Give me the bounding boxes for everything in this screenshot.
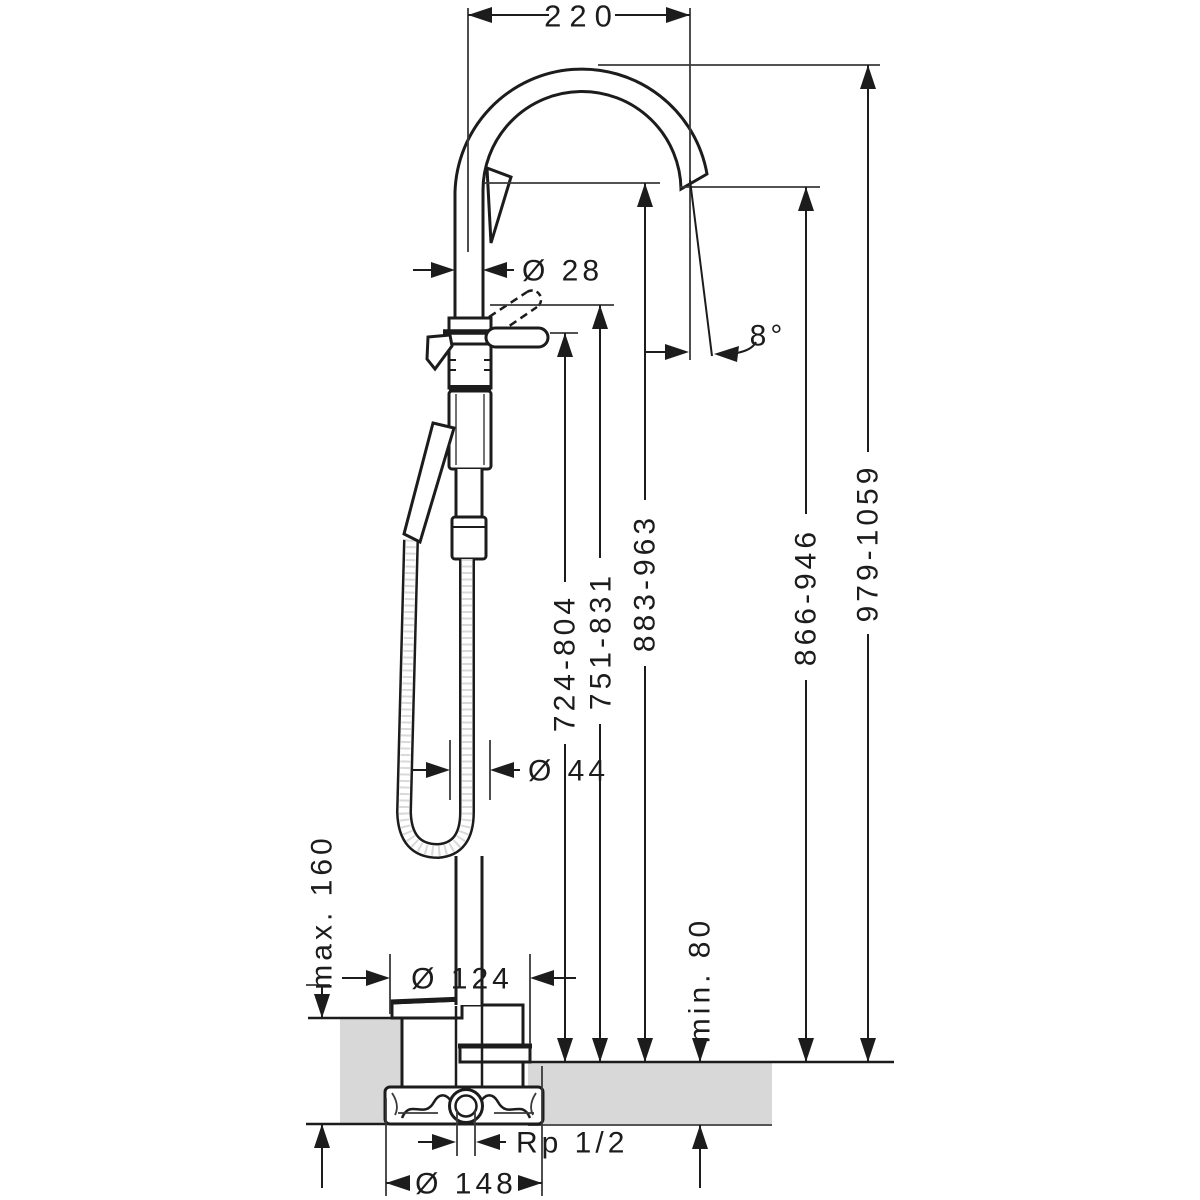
dim-handle-height: 724-804	[549, 333, 582, 1062]
dim-body-diameter: Ø 44	[411, 755, 609, 788]
dim-installation-diameter-label: Ø 148	[415, 1168, 517, 1200]
mixer-handle	[486, 328, 548, 347]
dim-total-height-label: 979-1059	[852, 464, 885, 623]
dim-angle-label: 8°	[750, 320, 787, 353]
dim-angle: 8°	[645, 320, 786, 363]
dim-spout-diameter: Ø 28	[413, 255, 603, 288]
dim-spout-reach: 220	[468, 0, 690, 34]
technical-drawing-page: 220 Ø 28 8° 724-804 751-831 883-963	[0, 0, 1200, 1200]
faucet-spout	[455, 69, 707, 266]
dim-min-floor-label: min. 80	[684, 917, 717, 1043]
base-escutcheon	[390, 999, 532, 1087]
dim-installation-diameter: Ø 148	[386, 1168, 542, 1200]
dim-min-floor: min. 80	[684, 917, 717, 1188]
dim-outlet-height: 866-946	[790, 187, 823, 1062]
dim-handle-raised-height: 751-831	[585, 305, 618, 1062]
riser-pipe-upper	[455, 256, 483, 322]
dim-handle-raised-height-label: 751-831	[585, 572, 618, 710]
dim-connection-thread: Rp 1/2	[418, 1127, 628, 1160]
dim-total-height: 979-1059	[852, 65, 885, 1062]
dim-handle-height-label: 724-804	[549, 594, 582, 732]
dim-spout-underside: 883-963	[629, 183, 662, 1062]
dim-escutcheon-diameter: Ø 124	[342, 963, 576, 996]
dim-outlet-height-label: 866-946	[790, 528, 823, 666]
dim-connection-thread-label: Rp 1/2	[516, 1127, 628, 1160]
dim-spout-underside-label: 883-963	[629, 514, 662, 652]
shower-hose	[404, 540, 467, 851]
hose-connector	[452, 517, 486, 559]
dim-escutcheon-diameter-label: Ø 124	[411, 963, 513, 996]
connection-circle	[450, 1090, 483, 1123]
dim-spout-diameter-label: Ø 28	[522, 255, 603, 288]
installation-body	[385, 1087, 543, 1124]
dim-body-diameter-label: Ø 44	[528, 755, 609, 788]
technical-drawing-canvas: 220 Ø 28 8° 724-804 751-831 883-963	[0, 0, 1200, 1200]
riser-pipe-mid	[456, 469, 482, 518]
dim-spout-reach-label: 220	[544, 0, 620, 34]
angle-construction-line	[690, 180, 712, 356]
dim-max-floor: max. 160	[306, 834, 339, 1188]
spout-aerator-detail	[487, 168, 511, 243]
handshower	[404, 423, 454, 542]
dim-max-floor-label: max. 160	[306, 834, 339, 989]
floor-right-slab	[528, 1062, 894, 1125]
